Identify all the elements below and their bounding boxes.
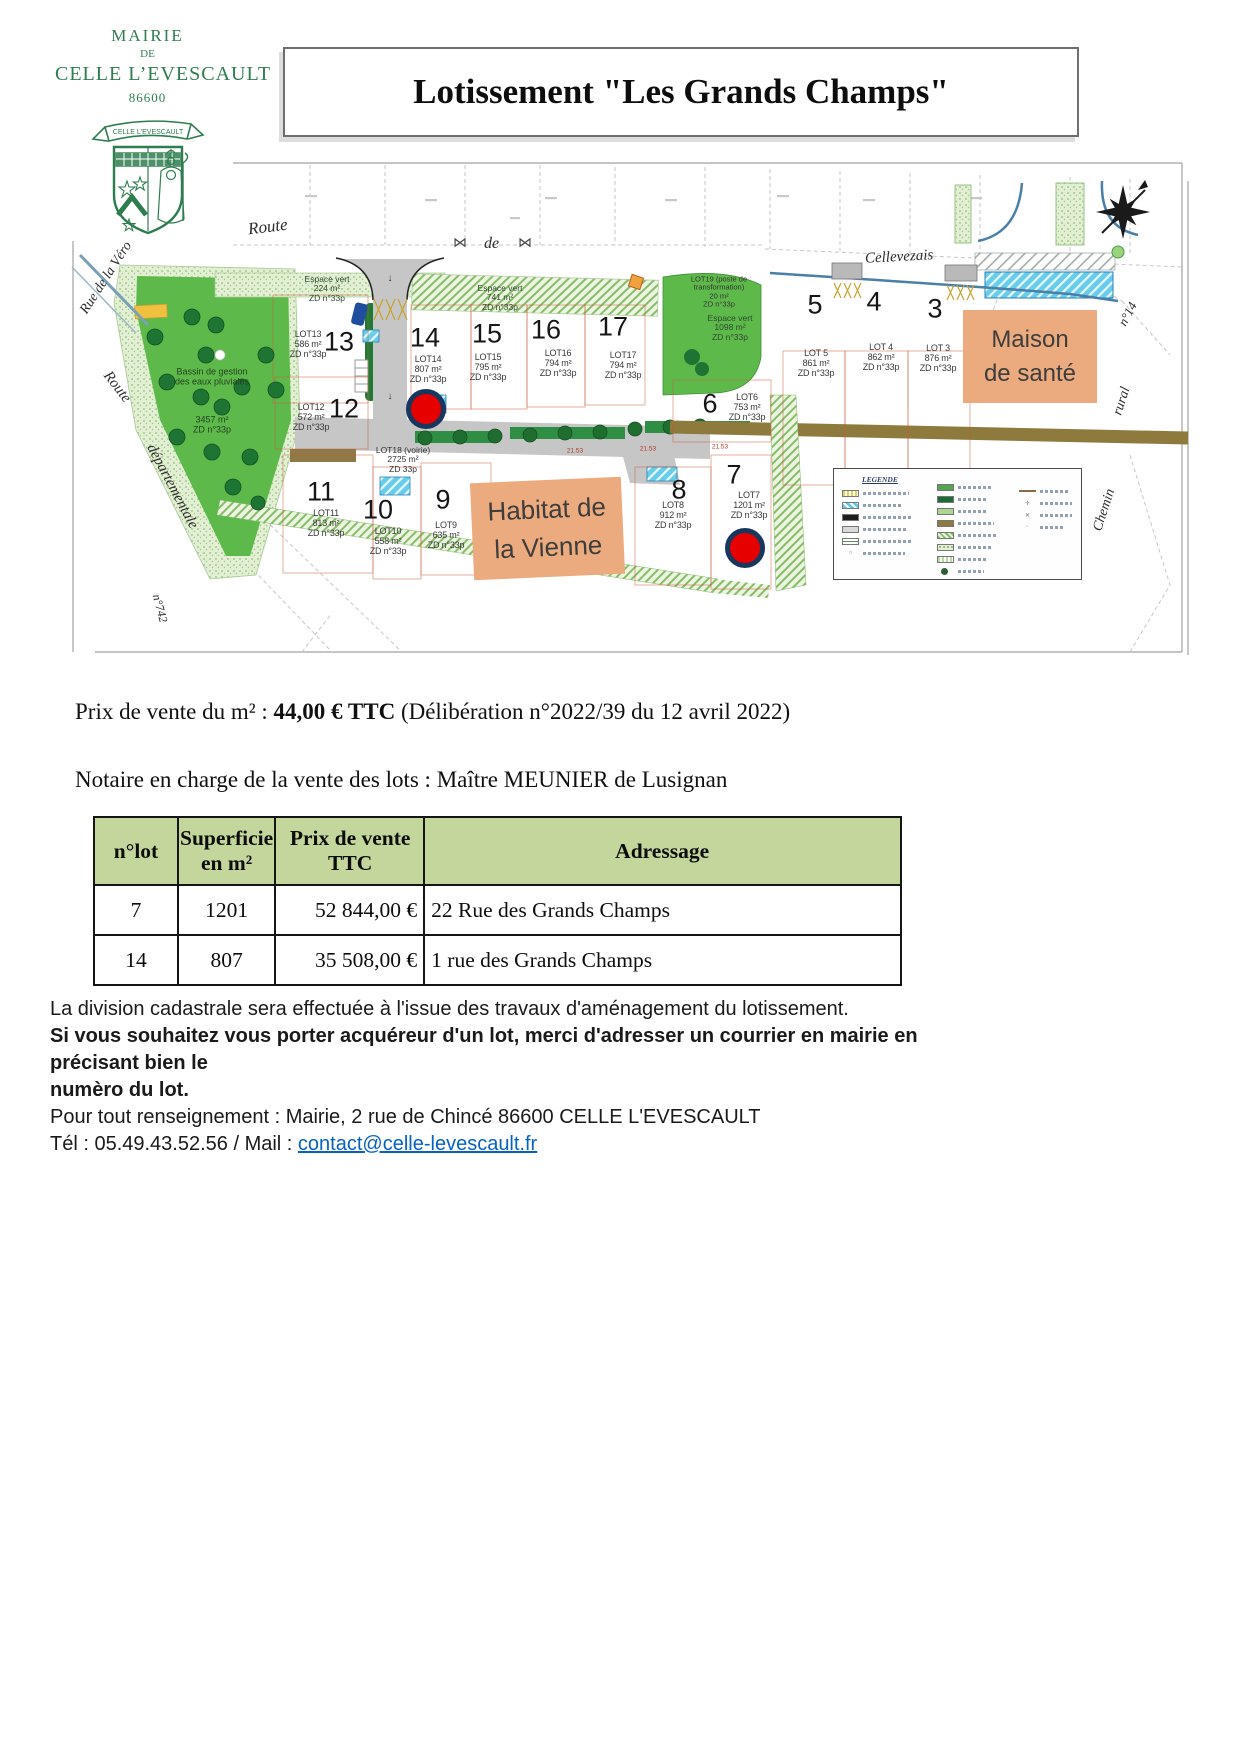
espace-vert-label-1: Espace vert224 m²ZD n°33p	[305, 275, 350, 303]
footer-line-division: La division cadastrale sera effectuée à …	[50, 996, 1000, 1023]
mail-link[interactable]: contact@celle-levescault.fr	[298, 1133, 537, 1155]
footer-line-renseignement: Pour tout renseignement : Mairie, 2 rue …	[50, 1104, 1000, 1131]
col-header-adressage: Adressage	[424, 817, 901, 885]
dimension-label-3: 21.53	[712, 444, 728, 451]
lot-number-15: 15	[472, 319, 502, 350]
lot-details-10: LOT10558 m²ZD n°33p	[370, 526, 407, 556]
lot-details-9: LOT9635 m²ZD n°33p	[428, 520, 465, 550]
lot-details-11: LOT11813 m²ZD n°33p	[308, 508, 345, 538]
cell-prix-row1: 52 844,00 €	[275, 885, 424, 935]
lot-details-6: LOT6753 m²ZD n°33p	[729, 392, 766, 422]
title-box: Lotissement "Les Grands Champs"	[283, 47, 1079, 137]
lot-number-14: 14	[410, 323, 440, 354]
page-title: Lotissement "Les Grands Champs"	[413, 72, 949, 112]
lot-number-11: 11	[307, 477, 335, 508]
pricing-suffix: (Délibération n°2022/39 du 12 avril 2022…	[395, 699, 790, 724]
lot-details-14: LOT14807 m²ZD n°33p	[410, 354, 447, 384]
lot-details-8: LOT8912 m²ZD n°33p	[655, 500, 692, 530]
footer-tel: Tél : 05.49.43.52.56 / Mail :	[50, 1133, 298, 1155]
sold-marker-lot-14	[406, 389, 446, 429]
lot-details-4: LOT 4862 m²ZD n°33p	[863, 342, 900, 372]
lot-number-17: 17	[598, 312, 628, 343]
lot-number-12: 12	[329, 394, 359, 425]
lot-details-5: LOT 5861 m²ZD n°33p	[798, 348, 835, 378]
lot-number-4: 4	[866, 287, 881, 318]
dimension-label-2: 21.53	[640, 446, 656, 453]
notaire-line: Notaire en charge de la vente des lots :…	[75, 767, 727, 793]
lot-number-6: 6	[702, 389, 717, 420]
pricing-prefix: Prix de vente du m² :	[75, 699, 274, 724]
logo-line-postcode: 86600	[55, 90, 240, 106]
document-page: MAIRIE DE CELLE L’EVESCAULT 86600 CELLE …	[0, 0, 1241, 1755]
cell-adressage-row2: 1 rue des Grands Champs	[424, 935, 901, 985]
sold-marker-lot-7	[725, 528, 765, 568]
lot-number-16: 16	[531, 315, 561, 346]
dimension-label-1: 21.53	[567, 448, 583, 455]
pricing-line: Prix de vente du m² : 44,00 € TTC (Délib…	[75, 699, 790, 725]
lot-details-7: LOT71201 m²ZD n°33p	[731, 490, 768, 520]
footer-line-contact: Tél : 05.49.43.52.56 / Mail : contact@ce…	[50, 1131, 1000, 1158]
site-plan-map: ⋈ ⋈ ↓ ↓ Route de Cellevezais Rue de la V…	[70, 155, 1190, 655]
lot-number-5: 5	[807, 290, 822, 321]
lot-details-13: LOT13586 m²ZD n°33p	[290, 329, 327, 359]
lot-details-3: LOT 3876 m²ZD n°33p	[920, 343, 957, 373]
col-header-superficie: Superficie en m²	[178, 817, 275, 885]
cell-superficie-row1: 1201	[178, 885, 275, 935]
logo-line-de: DE	[55, 48, 240, 60]
map-annotations: 3LOT 3876 m²ZD n°33p4LOT 4862 m²ZD n°33p…	[70, 155, 1190, 655]
footer-line-acquereur-1: Si vous souhaitez vous porter acquéreur …	[50, 1023, 1000, 1077]
cell-lot-row1: 7	[94, 885, 178, 935]
lot-number-3: 3	[927, 294, 942, 325]
lot-details-16: LOT16794 m²ZD n°33p	[540, 348, 577, 378]
lot-number-13: 13	[324, 327, 354, 358]
lot-details-12: LOT12572 m²ZD n°33p	[293, 402, 330, 432]
table-row-lot-14: 1480735 508,00 €1 rue des Grands Champs	[94, 935, 901, 985]
lot-number-10: 10	[363, 495, 393, 526]
logo-line-commune: CELLE L’EVESCAULT	[55, 63, 240, 86]
pricing-value: 44,00 € TTC	[274, 699, 396, 724]
col-header-lot: n°lot	[94, 817, 178, 885]
footer-line-acquereur: Si vous souhaitez vous porter acquéreur …	[50, 1023, 1000, 1104]
cell-superficie-row2: 807	[178, 935, 275, 985]
col-header-prix: Prix de vente TTC	[275, 817, 424, 885]
lots-table: n°lot Superficie en m² Prix de vente TTC…	[93, 816, 902, 986]
cell-prix-row2: 35 508,00 €	[275, 935, 424, 985]
footer-block: La division cadastrale sera effectuée à …	[50, 996, 1000, 1158]
table-body: 7120152 844,00 €22 Rue des Grands Champs…	[94, 885, 901, 985]
lot-details-17: LOT17794 m²ZD n°33p	[605, 350, 642, 380]
table-row-lot-7: 7120152 844,00 €22 Rue des Grands Champs	[94, 885, 901, 935]
table-header-row: n°lot Superficie en m² Prix de vente TTC…	[94, 817, 901, 885]
footer-line-acquereur-2: numèro du lot.	[50, 1077, 1000, 1104]
cell-adressage-row1: 22 Rue des Grands Champs	[424, 885, 901, 935]
crest-banner-text: CELLE L'EVESCAULT	[112, 129, 183, 136]
lot-details-15: LOT15795 m²ZD n°33p	[470, 352, 507, 382]
lot-number-7: 7	[726, 460, 741, 491]
cell-lot-row2: 14	[94, 935, 178, 985]
lot-number-9: 9	[435, 485, 450, 516]
logo-line-mairie: MAIRIE	[55, 26, 240, 46]
espace-vert-label-3: Espace vert1098 m²ZD n°33p	[708, 314, 753, 342]
espace-vert-label-2: Espace vert741 m²ZD n°33p	[478, 284, 523, 312]
